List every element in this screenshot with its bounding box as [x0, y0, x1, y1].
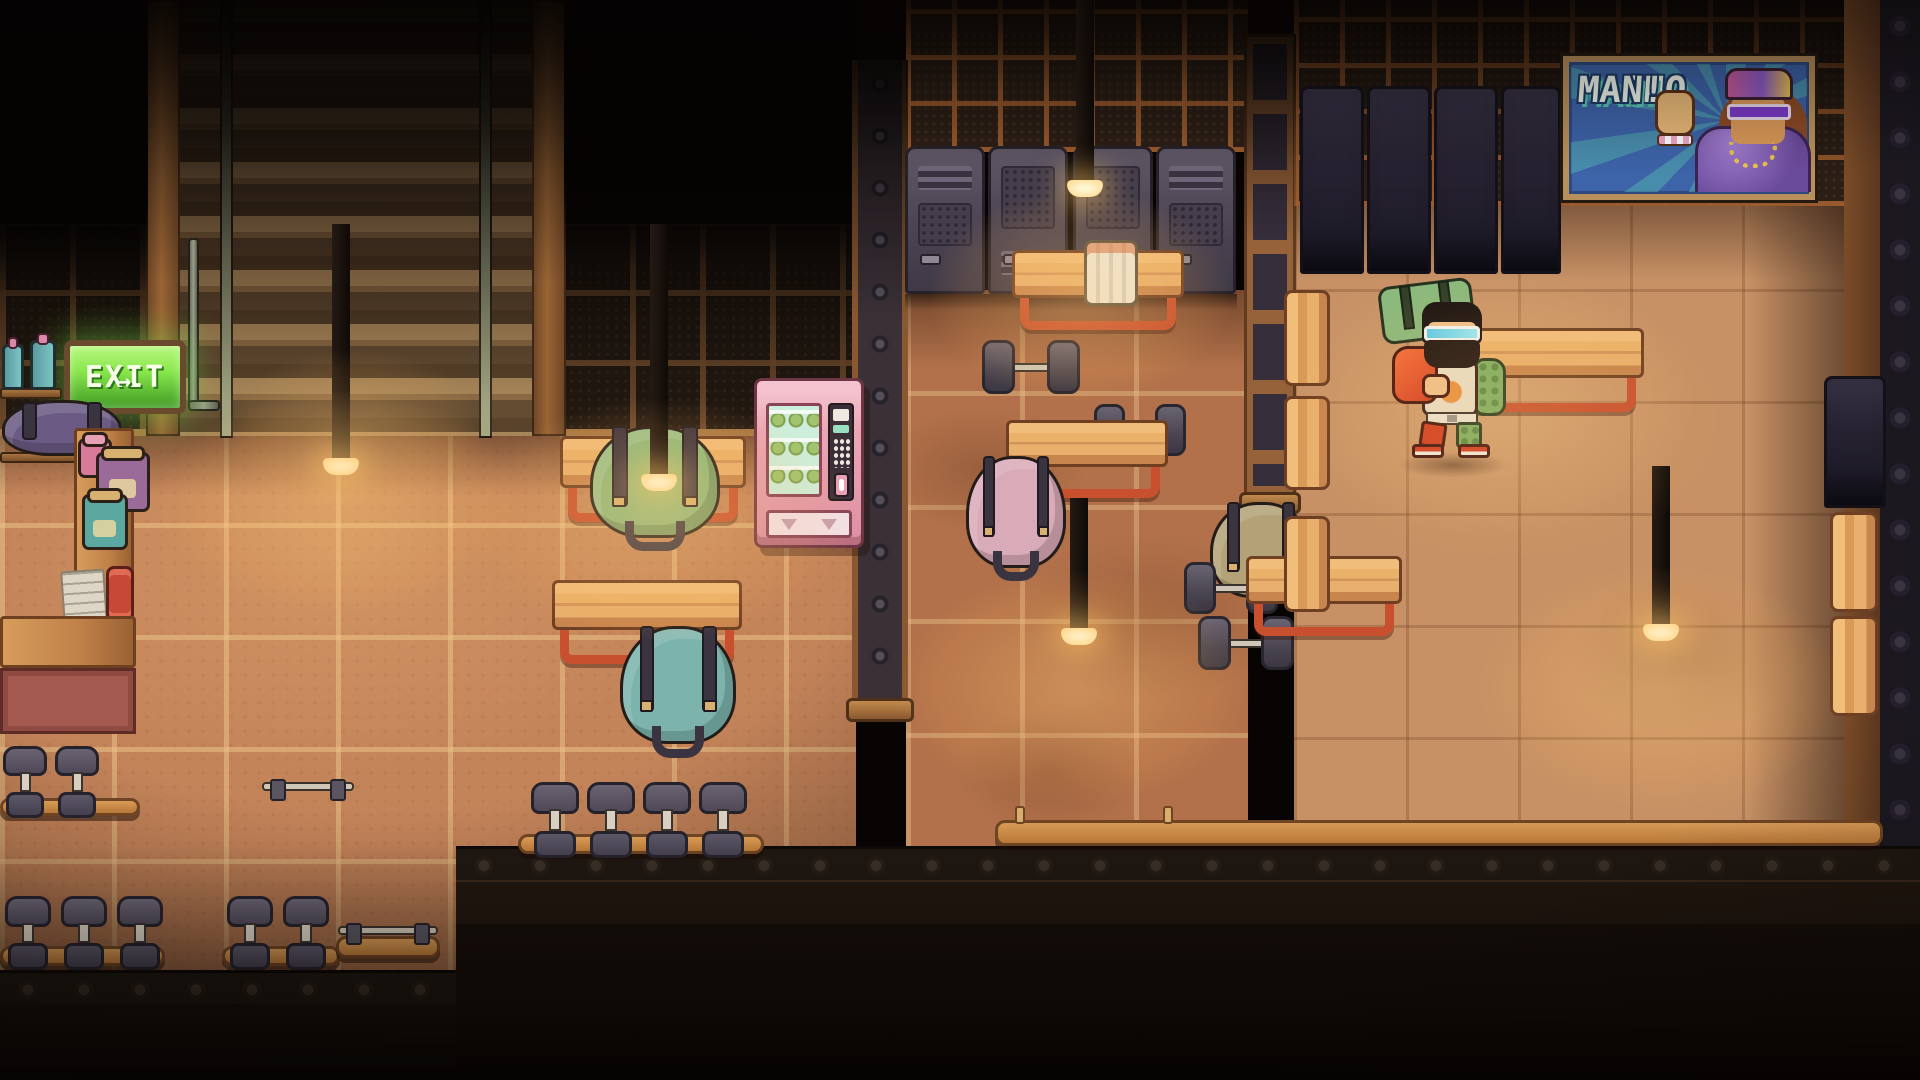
dumbbell-plate: [1198, 616, 1231, 670]
dumbbell-grip: [72, 772, 83, 792]
vending-dispenser: [766, 510, 852, 538]
bench-vertical: [1830, 512, 1878, 612]
dumbbell-plate: [982, 340, 1015, 394]
bench-vertical: [1284, 516, 1330, 612]
red-phone: [106, 566, 134, 622]
rack-peg: [1015, 806, 1025, 824]
vending-coin-slot: [834, 473, 849, 497]
supplement-jar-teal: [82, 494, 128, 550]
hanging-lamp: [650, 224, 668, 476]
standing-dumbbell: [0, 746, 50, 818]
bench-vertical: [1830, 616, 1878, 716]
bag-handle: [625, 521, 685, 551]
vending-panel: [828, 403, 854, 501]
staircase[interactable]: [178, 0, 534, 436]
jar-lid: [87, 488, 124, 503]
dark-opening-middle: [564, 0, 856, 262]
standing-dumbbell: [640, 782, 694, 858]
dumbbell-base: [286, 943, 326, 970]
platform-edge-bolts: [0, 970, 456, 1006]
wall-pipe: [188, 238, 199, 408]
player-sunglasses: [1424, 326, 1480, 341]
dumbbell-grip: [549, 809, 561, 830]
locker-navy: [1367, 86, 1431, 274]
navy-cabinet: [1824, 376, 1886, 508]
locker-navy: [1501, 86, 1561, 274]
poster-bandana: [1725, 68, 1793, 100]
macho-man-poster: MACHO MAN!: [1563, 56, 1815, 200]
standing-dumbbell: [52, 746, 102, 818]
standing-dumbbell: [2, 896, 54, 970]
dumbbell-base: [58, 792, 96, 818]
dumbbell-plate: [1184, 562, 1216, 614]
right-wall-rivets: [1880, 0, 1920, 882]
dumbbell-base: [120, 943, 160, 970]
poster-wristband: [1657, 134, 1693, 146]
bag-buckle: [612, 496, 627, 508]
shaker-bottle: [2, 344, 24, 390]
bench-planks: [1830, 512, 1878, 612]
poster-line-2: MAN!: [1577, 74, 1666, 108]
bag-buckle: [983, 526, 994, 538]
dumbbell-grip: [22, 923, 33, 944]
hanging-lamp: [1652, 466, 1670, 626]
rack-peg: [1163, 806, 1173, 824]
jar-lid: [82, 432, 108, 447]
wall-ledge-rack: [995, 820, 1883, 846]
game-viewport[interactable]: EXIT →: [0, 0, 1920, 1080]
standing-dumbbell: [224, 896, 276, 970]
stair-pillar-right: [532, 0, 566, 436]
hanging-lamp: [332, 224, 350, 460]
vending-card-reader: [833, 425, 849, 433]
lower-dark-area: [0, 1004, 456, 1080]
dumbbell-base: [64, 943, 104, 970]
hanging-lamp: [1070, 498, 1088, 630]
dumbbell-grip: [20, 772, 31, 792]
bag-buckle: [1038, 526, 1049, 538]
dumbbell: [982, 340, 1080, 394]
bag-buckle: [684, 496, 699, 508]
arrow-down-icon: [781, 519, 797, 538]
wall-pipe-elbow: [188, 400, 220, 411]
exit-arrow-icon: →: [117, 367, 133, 395]
dumbbell-base: [6, 792, 44, 818]
counter-front: [0, 668, 136, 734]
dumbbell-base: [590, 831, 631, 858]
bag-handle: [652, 726, 705, 757]
bench-vertical: [1284, 290, 1330, 386]
locker-mesh: [1086, 166, 1139, 228]
vending-window: [766, 403, 822, 497]
dumbbell-grip: [244, 923, 255, 944]
bag-handle: [993, 551, 1038, 581]
dumbbell-base: [702, 831, 743, 858]
backpack-strap: [1399, 285, 1415, 330]
dumbbell-grip: [605, 809, 617, 830]
bench-vertical: [1284, 396, 1330, 490]
bench-planks: [1284, 290, 1330, 386]
stair-shading: [178, 0, 534, 436]
poster-sunglasses: [1727, 104, 1791, 120]
hanging-lamp: [1076, 0, 1094, 182]
gym-bag-pink: [966, 456, 1066, 568]
rolled-towel: [1084, 240, 1138, 306]
dumbbell-grip: [661, 809, 673, 830]
locker-navy: [1434, 86, 1498, 274]
player-shoe: [1458, 444, 1490, 458]
bag-strap: [640, 626, 654, 712]
standing-dumbbell: [584, 782, 638, 858]
poster-bodybuilder: [1677, 64, 1807, 192]
player-beard: [1424, 340, 1480, 368]
bag-buckle: [640, 700, 653, 712]
bag-buckle: [703, 700, 716, 712]
dumbbell-grip: [78, 923, 89, 944]
barbell: [338, 926, 438, 935]
standing-dumbbell: [58, 896, 110, 970]
dumbbell-base: [8, 943, 48, 970]
locker-handle: [920, 254, 941, 265]
bag-strap: [22, 402, 37, 441]
locker-mesh: [918, 203, 971, 246]
dumbbell-plate: [1047, 340, 1080, 394]
vending-keypad: [833, 438, 850, 468]
vending-machine[interactable]: [754, 378, 864, 548]
shaker-bottle: [30, 340, 56, 390]
player-arm-camo: [1474, 358, 1506, 416]
jar-lid: [101, 446, 145, 461]
barbell: [262, 782, 354, 791]
lower-dark-area: [456, 880, 1920, 1080]
player-shoe: [1412, 444, 1444, 458]
locker-navy: [1300, 86, 1364, 274]
shaker-cap: [37, 333, 50, 345]
bench-planks: [552, 580, 742, 630]
dumbbell-base: [534, 831, 575, 858]
counter-top: [0, 616, 136, 668]
standing-dumbbell: [280, 896, 332, 970]
player-character[interactable]: [1392, 288, 1508, 464]
shaker-cap: [8, 337, 18, 349]
arrow-down-icon: [821, 519, 837, 538]
standing-dumbbell: [114, 896, 166, 970]
locker-vent: [918, 166, 971, 190]
right-floor-tiles: [1294, 202, 1846, 852]
dumbbell-base: [646, 831, 687, 858]
bag-strap: [702, 626, 716, 712]
locker-vent: [1169, 166, 1222, 190]
dark-opening-left: [0, 0, 148, 300]
dumbbell-grip: [300, 923, 311, 944]
vending-display: [833, 409, 849, 421]
bench-planks: [1830, 616, 1878, 716]
poster-fist: [1655, 90, 1695, 136]
standing-dumbbell: [528, 782, 582, 858]
locker-mesh: [1001, 166, 1054, 228]
dumbbell-base: [230, 943, 270, 970]
dumbbell-grip: [134, 923, 145, 944]
bench-planks: [1284, 516, 1330, 612]
locker-mesh: [1169, 203, 1222, 246]
locker[interactable]: [905, 146, 985, 294]
dumbbell-grip: [717, 809, 729, 830]
jar-label: [93, 520, 116, 537]
bench-planks: [1284, 396, 1330, 490]
standing-dumbbell: [696, 782, 750, 858]
gym-bag-teal: [620, 626, 736, 744]
player-fist: [1422, 374, 1450, 398]
